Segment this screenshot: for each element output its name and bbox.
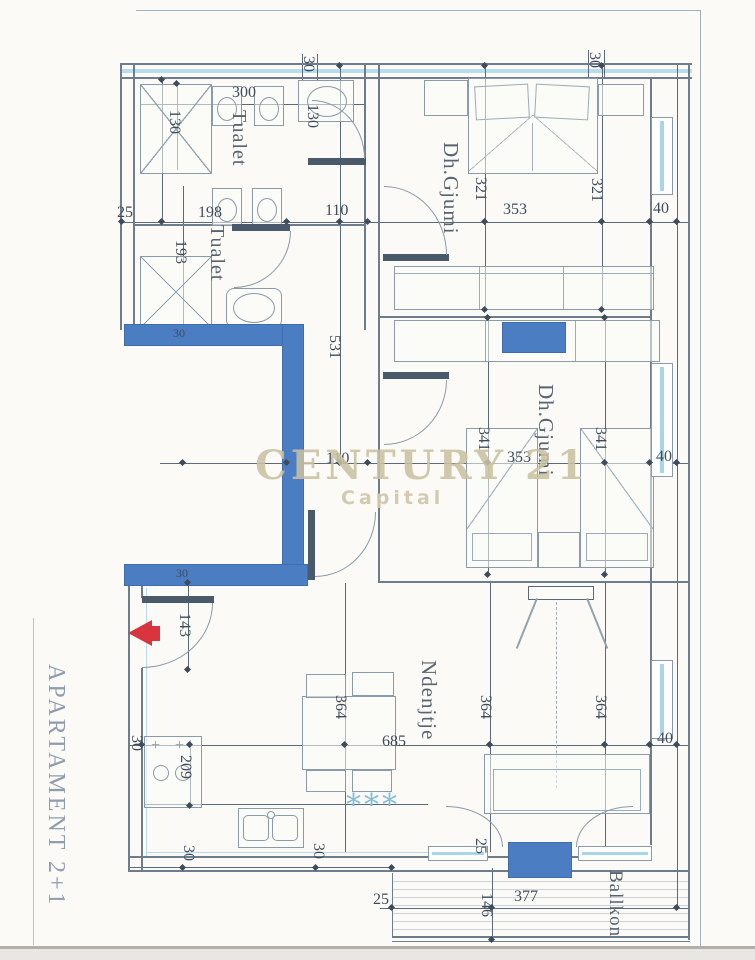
wall-bottom-inner-a [128,856,428,858]
room-label: Ballkon [606,870,625,937]
balcony-floor-hatch [393,874,689,936]
dim-label: 364 [592,695,608,719]
bidet-toilet2 [252,188,282,226]
dim-label: 321 [588,178,604,202]
dim-label: 321 [472,177,488,201]
dim-marker [673,459,680,466]
dim-label: 110 [325,203,348,219]
dim-marker [486,741,493,748]
watermark-brand: CENTURY 21 [255,442,589,489]
door-leaf-toilet1 [308,158,366,165]
dining-chair [306,770,346,792]
sheet-frame-top [136,10,700,11]
wall-toilet-divider-b [290,224,366,226]
window-balcony-door-right [578,846,652,861]
dim-label: 130 [166,110,182,134]
dim-label: 25 [373,892,389,908]
door-arc-toilet2 [234,231,291,288]
shower-tray-toilet2 [140,256,212,328]
room-label: Tualet [207,225,227,281]
dim-line-h-balcony [380,908,690,909]
dim-marker [598,218,605,225]
dim-marker [481,218,488,225]
dim-marker [184,666,191,673]
wall-top-inner [120,77,692,79]
dim-label: 193 [172,240,188,264]
wall-left-upper-inner [133,63,135,330]
dim-label: 353 [503,202,527,218]
dim-label: 198 [198,205,222,221]
washbasin-toilet2 [226,288,282,328]
door-leaf-bedroom1 [383,254,449,261]
dim-label: 130 [304,104,320,128]
door-leaf-living [308,510,315,580]
door-leaf-entry [142,596,214,603]
wall-top-outer [120,63,692,65]
dim-marker [601,741,608,748]
sheet-frame-left [33,618,34,945]
door-arc-bedroom2 [384,380,447,445]
kitchen-sink [238,808,304,848]
balcony-rail-b [392,941,690,942]
dim-label: 30 [173,327,185,339]
apartment-title: APARTAMENT 2+1 [42,664,69,908]
dim-marker [673,218,680,225]
nightstand-bedroom1-left [424,80,468,116]
wall-right-outer [688,63,690,873]
sofa [484,754,650,814]
watermark-sub: Capital [341,487,444,509]
dim-label: 30 [310,843,326,859]
dim-label: 377 [514,889,538,905]
dim-label: 300 [232,85,256,101]
dim-line-v-right-ext [677,64,678,908]
blue-wall-bottom-pier [508,842,572,878]
dim-label: 30 [300,56,316,72]
double-bed-bedroom1 [468,78,598,174]
door-leaf-bedroom2 [383,372,449,379]
wall-toilet1-right [364,63,366,225]
dim-label: 531 [326,335,342,359]
nightstand-bedroom2 [538,532,580,568]
dim-label: 685 [382,734,406,750]
balcony-rail-a [392,936,690,938]
wall-balcony-right [688,873,690,940]
wall-left-upper-outer [120,63,122,330]
blue-wall-stair-bottom [124,564,308,586]
wall-bedroom-divider [378,316,652,318]
nightstand-bedroom1-right [598,84,644,116]
room-label: Ndenjtje [418,660,439,740]
room-label: Dh.Gjumi [440,142,461,235]
wall-toilet2-right [364,224,366,330]
floor-plan-sheet: + + *** APARTAMENT 2+1 CENTURY 21 Capita… [0,0,755,960]
dim-label: 364 [477,695,493,719]
dim-label: 25 [472,838,488,854]
blue-wall-stair-top [124,324,304,346]
window-living-right [651,660,673,739]
bidet-toilet1 [254,86,284,126]
wall-left-lower-inner-b [141,668,143,872]
wall-top-insulation [120,69,692,73]
door-leaf-toilet2 [232,224,290,231]
dim-label: 364 [332,695,348,719]
window-bedroom1-right [651,117,673,195]
pillow [472,533,532,561]
dim-label: 209 [177,755,193,779]
dining-chair [352,672,394,696]
dim-label: 143 [176,613,192,637]
dim-label: 341 [592,427,608,451]
dim-label: 40 [653,201,669,217]
dim-marker [484,571,491,578]
dim-marker [179,459,186,466]
dim-label: 30 [176,567,188,579]
dim-label: 40 [657,731,673,747]
dim-marker [673,741,680,748]
wall-living-top [378,581,690,583]
wardrobe-bedroom1 [394,266,654,310]
entry-arrow-tail [151,626,160,641]
door-arc-bedroom1 [384,186,447,255]
dim-label: 40 [656,449,672,465]
rug-asterisks: *** [346,788,400,823]
sheet-frame-right [700,10,701,946]
scan-page-margin [0,949,755,960]
dim-line-h-bottomwall [128,867,392,868]
entry-arrow-icon [128,620,152,646]
pillow [586,533,648,561]
tv-projection-left [516,598,538,649]
door-arc-living [315,512,376,577]
dim-marker [601,571,608,578]
room-label: Tualet [229,110,249,166]
blue-wall-bedroom-pier [502,322,566,353]
dim-label: 30 [180,845,196,861]
